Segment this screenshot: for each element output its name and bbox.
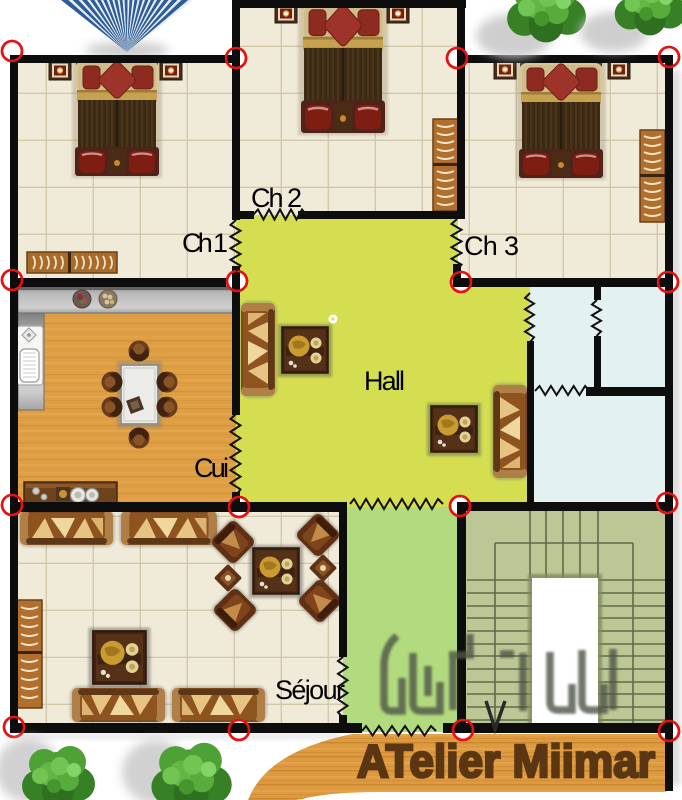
svg-text:ATelier Miimar: ATelier Miimar bbox=[357, 735, 655, 787]
svg-text:Ch 2: Ch 2 bbox=[251, 183, 302, 213]
svg-text:Ch 1: Ch 1 bbox=[182, 228, 228, 258]
svg-text:Hall: Hall bbox=[364, 366, 405, 396]
svg-text:Ch 3: Ch 3 bbox=[464, 231, 519, 261]
svg-text:Séjour: Séjour bbox=[275, 675, 345, 705]
svg-text:Cui: Cui bbox=[194, 453, 229, 483]
